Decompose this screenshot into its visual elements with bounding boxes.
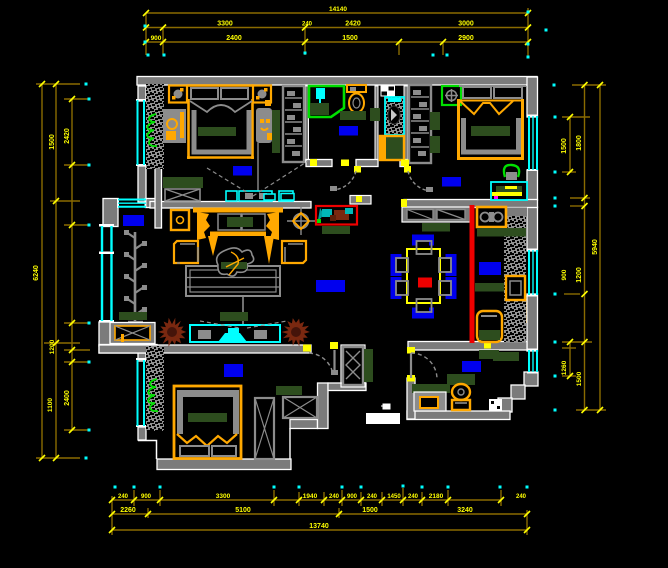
svg-text:240: 240 — [118, 494, 129, 500]
svg-text:6240: 6240 — [33, 265, 40, 281]
svg-text:14140: 14140 — [329, 6, 347, 13]
svg-text:13740: 13740 — [309, 523, 329, 530]
svg-text:2400: 2400 — [226, 35, 242, 42]
svg-text:900: 900 — [561, 269, 568, 280]
svg-text:1500: 1500 — [561, 138, 568, 154]
svg-text:1200: 1200 — [49, 339, 56, 354]
svg-text:5940: 5940 — [592, 239, 599, 255]
svg-text:3000: 3000 — [458, 21, 474, 28]
svg-text:5100: 5100 — [235, 507, 251, 514]
svg-text:240: 240 — [367, 494, 378, 500]
svg-text:1450: 1450 — [387, 494, 401, 500]
svg-text:1500: 1500 — [576, 371, 583, 386]
svg-text:3300: 3300 — [216, 493, 231, 500]
svg-text:240: 240 — [302, 22, 313, 28]
svg-text:1800: 1800 — [576, 135, 583, 151]
svg-text:1500: 1500 — [49, 134, 56, 150]
svg-text:900: 900 — [347, 494, 358, 500]
svg-text:240: 240 — [408, 494, 419, 500]
svg-text:240: 240 — [516, 494, 527, 500]
svg-text:2900: 2900 — [458, 35, 474, 42]
svg-text:900: 900 — [141, 494, 152, 500]
svg-text:1200: 1200 — [576, 267, 583, 283]
svg-text:1260: 1260 — [561, 360, 568, 375]
svg-text:1500: 1500 — [362, 507, 378, 514]
svg-text:3240: 3240 — [457, 507, 473, 514]
svg-text:1940: 1940 — [303, 493, 318, 500]
svg-text:1500: 1500 — [342, 35, 358, 42]
svg-text:900: 900 — [151, 35, 162, 42]
svg-text:2260: 2260 — [120, 507, 136, 514]
svg-text:2400: 2400 — [64, 390, 71, 406]
svg-text:240: 240 — [329, 494, 340, 500]
svg-text:1100: 1100 — [47, 398, 54, 412]
svg-text:3300: 3300 — [217, 21, 233, 28]
svg-text:2180: 2180 — [429, 493, 444, 500]
svg-text:2420: 2420 — [64, 128, 71, 144]
svg-text:2420: 2420 — [345, 21, 361, 28]
